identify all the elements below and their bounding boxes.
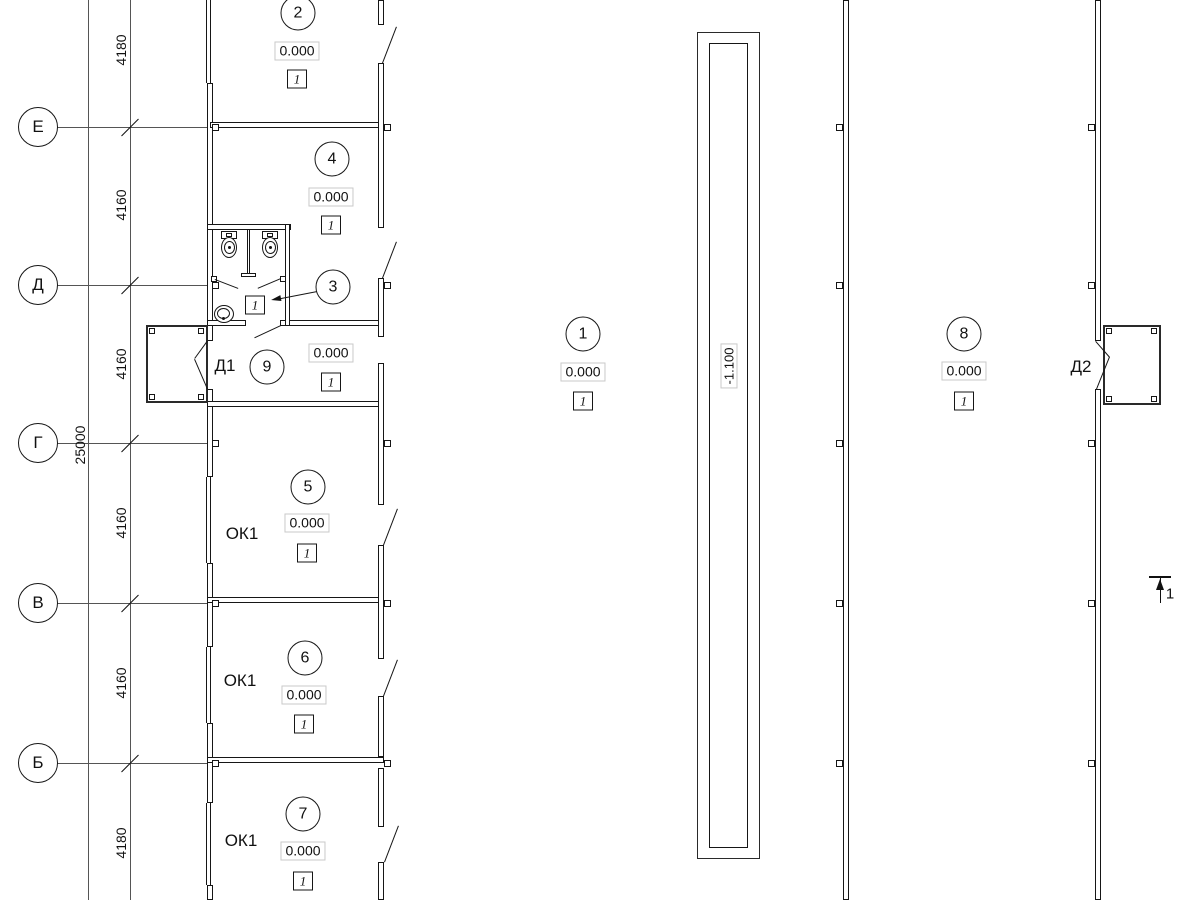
wall-node [836, 440, 843, 447]
corridor-wall [378, 0, 384, 25]
axis-bubble-b: Б [18, 743, 58, 783]
room-door-leaf [382, 242, 397, 279]
right-exterior-wall [1095, 0, 1101, 341]
right-exterior-wall [1095, 389, 1101, 900]
room-number: 4 [328, 150, 337, 168]
porch-anchor [1151, 328, 1157, 334]
wall-node [212, 760, 219, 767]
floor-type-mark: 1 [294, 715, 314, 734]
window-opening [206, 803, 211, 885]
floor-type-mark: 1 [297, 544, 317, 563]
room-elevation: 0.000 [941, 362, 986, 381]
ramp-elevation: -1.100 [721, 344, 738, 389]
wall-node [384, 600, 391, 607]
window-label: ОК1 [225, 831, 258, 851]
floor-type-mark: 1 [321, 373, 341, 392]
room-number: 9 [263, 358, 272, 376]
wall-node [212, 124, 219, 131]
dimension-text: 4160 [113, 667, 129, 698]
dimension-text: 4160 [113, 348, 129, 379]
window-opening [206, 0, 211, 83]
wall-node [212, 282, 219, 289]
axis-label: Д [32, 275, 44, 295]
wall-node [1088, 760, 1095, 767]
room-number-bubble: 8 [947, 317, 982, 352]
room-elevation: 0.000 [281, 686, 326, 705]
corridor-wall [378, 63, 384, 228]
room-elevation: 0.000 [560, 363, 605, 382]
room-number: 6 [301, 649, 310, 667]
floor-type-mark: 1 [954, 392, 974, 411]
exterior-wall [207, 885, 213, 900]
room-elevation: 0.000 [308, 188, 353, 207]
axis-bubble-d: Д [18, 265, 58, 305]
axis-bubble-g: Г [18, 423, 58, 463]
wall-node [1088, 600, 1095, 607]
floor-type-mark: 1 [287, 70, 307, 89]
porch-anchor [1106, 396, 1112, 402]
wall-node [836, 124, 843, 131]
room-number-bubble: 6 [288, 641, 323, 676]
room-door-leaf [382, 27, 397, 64]
interior-wall [207, 757, 384, 763]
axis-bubble-e: Е [18, 107, 58, 147]
sink-drain [222, 317, 225, 320]
dimension-line-total [88, 0, 89, 900]
wall-node [1088, 124, 1095, 131]
wc-stall-door-leaf [258, 278, 281, 289]
room-number: 1 [579, 325, 588, 343]
porch-anchor [1151, 396, 1157, 402]
room-number: 3 [329, 278, 338, 296]
wc-stall-partition [247, 230, 250, 273]
leader-arrowhead [271, 295, 282, 303]
ramp-inner-outline [709, 43, 748, 848]
wc-entry-door-leaf [254, 325, 281, 338]
room-elevation: 0.000 [308, 344, 353, 363]
room-elevation: 0.000 [274, 42, 319, 61]
wc-stall-partition-foot [241, 273, 256, 277]
floor-type-mark: 1 [245, 296, 265, 315]
floor-type-mark: 1 [293, 872, 313, 891]
dimension-text: 4160 [113, 507, 129, 538]
porch-anchor [149, 328, 155, 334]
wall-node [1088, 282, 1095, 289]
axis-label: Б [32, 753, 43, 773]
wall-node [836, 282, 843, 289]
room-leader-line [276, 291, 317, 300]
section-mark-number: 1 [1166, 586, 1174, 603]
section-arrow-icon [1156, 579, 1164, 590]
room-number-bubble: 9 [250, 350, 285, 385]
room-number: 8 [960, 325, 969, 343]
wall-node [212, 600, 219, 607]
room-number: 2 [294, 4, 303, 22]
floor-type-mark: 1 [573, 392, 593, 411]
axis-label: Е [32, 117, 43, 137]
window-label: ОК1 [226, 524, 259, 544]
entrance-porch-right [1103, 325, 1161, 405]
entrance-porch-left [146, 325, 208, 403]
dimension-text: 4160 [113, 189, 129, 220]
room-number-bubble: 4 [315, 142, 350, 177]
room-elevation: 0.000 [280, 842, 325, 861]
room-number-bubble: 2 [281, 0, 316, 31]
wc-wall-right [285, 224, 290, 326]
room-elevation: 0.000 [284, 514, 329, 533]
axis-label: Г [33, 433, 42, 453]
room-number-bubble: 7 [286, 797, 321, 832]
axis-line-v [57, 603, 207, 604]
room-number: 7 [299, 805, 308, 823]
porch-anchor [198, 394, 204, 400]
interior-wall [280, 320, 384, 326]
room-door-leaf [383, 660, 398, 697]
wall-node [212, 440, 219, 447]
axis-line-e [57, 127, 207, 128]
wall-node [384, 124, 391, 131]
dimension-text: 4180 [113, 827, 129, 858]
toilet-drain [269, 246, 272, 249]
axis-label: В [32, 593, 43, 613]
wall-node [1088, 440, 1095, 447]
room-number-bubble: 5 [291, 470, 326, 505]
dimension-text-total: 25000 [72, 426, 88, 465]
porch-anchor [198, 328, 204, 334]
porch-anchor [1106, 328, 1112, 334]
corridor-wall [378, 363, 384, 505]
corridor-wall [378, 696, 384, 757]
room-number: 5 [304, 478, 313, 496]
axis-line-b [57, 763, 207, 764]
porch-anchor [149, 394, 155, 400]
door-label-d2: Д2 [1071, 357, 1092, 377]
wall-node [384, 760, 391, 767]
floor-plan-canvas: Е Д Г В Б 4180 4160 4160 4160 4160 4180 … [0, 0, 1200, 900]
wall-node [384, 440, 391, 447]
wall-node [836, 600, 843, 607]
room-door-leaf [383, 509, 398, 546]
window-opening [206, 477, 211, 563]
wall-node [836, 760, 843, 767]
interior-wall [207, 401, 384, 407]
middle-wall [843, 0, 849, 900]
axis-line-d [57, 285, 207, 286]
axis-bubble-v: В [18, 583, 58, 623]
floor-type-mark: 1 [321, 216, 341, 235]
corridor-wall [378, 862, 384, 900]
window-label: ОК1 [224, 671, 257, 691]
window-opening [206, 647, 211, 723]
wall-node [384, 282, 391, 289]
corridor-wall [378, 768, 384, 827]
room-number-bubble: 3 [316, 270, 351, 305]
room-door-leaf [384, 826, 399, 863]
dimension-text: 4180 [113, 34, 129, 65]
room-number-bubble: 1 [566, 317, 601, 352]
interior-wall [207, 597, 384, 603]
toilet-drain [228, 246, 231, 249]
dimension-line-segments [130, 0, 131, 900]
door-label-d1: Д1 [215, 356, 236, 376]
interior-wall [210, 122, 384, 128]
